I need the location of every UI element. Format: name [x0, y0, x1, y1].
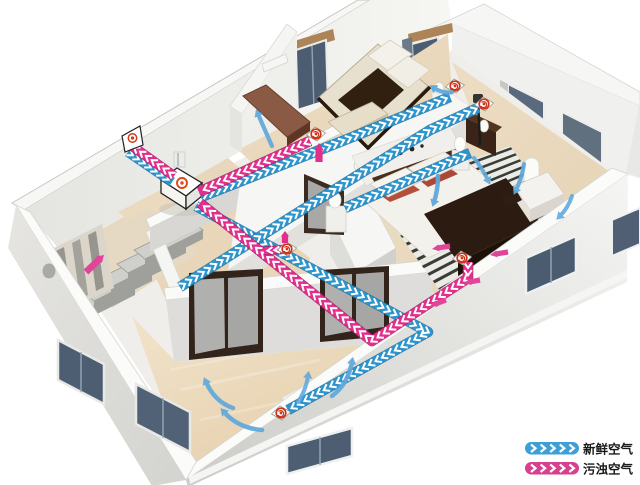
- svg-text:污浊空气: 污浊空气: [583, 462, 634, 477]
- svg-text:新鲜空气: 新鲜空气: [583, 442, 634, 457]
